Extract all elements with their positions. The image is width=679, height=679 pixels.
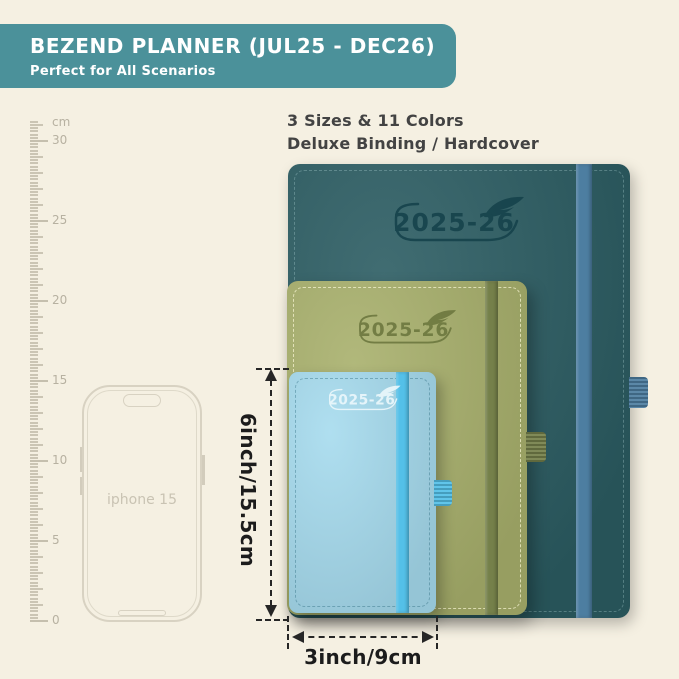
ruler-label: 0 — [52, 613, 60, 627]
ruler-tick — [30, 524, 43, 526]
ruler-tick — [30, 498, 38, 500]
ruler-tick — [30, 338, 38, 340]
ruler-tick — [30, 534, 38, 536]
elastic-band — [485, 281, 498, 615]
ruler-tick — [30, 514, 38, 516]
height-extent-bottom — [256, 619, 289, 621]
ruler-label: 20 — [52, 293, 67, 307]
ruler-tick — [30, 364, 43, 366]
ruler-tick — [30, 550, 38, 552]
ruler-tick — [30, 380, 48, 382]
product-tagline: Perfect for All Scenarios — [30, 64, 216, 79]
pen-loop — [526, 432, 546, 462]
ruler-tick — [30, 614, 38, 616]
ruler-tick — [30, 495, 38, 497]
ruler-tick — [30, 361, 38, 363]
ruler-tick — [30, 127, 38, 129]
ruler-tick — [30, 486, 38, 488]
ruler-tick — [30, 316, 43, 318]
ruler-tick — [30, 556, 43, 558]
ruler-tick — [30, 150, 38, 152]
ruler-tick — [30, 425, 38, 427]
ruler-tick — [30, 310, 38, 312]
ruler-tick — [30, 284, 43, 286]
ruler-tick — [30, 230, 38, 232]
ruler-tick — [30, 601, 38, 603]
feature-text: 3 Sizes & 11 Colors Deluxe Binding / Har… — [287, 109, 539, 155]
ruler-tick — [30, 489, 38, 491]
ruler-label: 30 — [52, 133, 67, 147]
logo-year: 2025-26 — [393, 208, 515, 237]
width-dimension-label: 3inch/9cm — [263, 645, 463, 669]
ruler-tick — [30, 319, 38, 321]
ruler-tick — [30, 617, 38, 619]
ruler-tick — [30, 479, 38, 481]
embossed-logo: 2025-26 — [388, 194, 528, 250]
ruler-tick — [30, 210, 38, 212]
ruler-tick — [30, 562, 38, 564]
ruler-label: 10 — [52, 453, 67, 467]
ruler-tick — [30, 185, 38, 187]
height-dimension-line — [270, 380, 272, 606]
ruler-tick — [30, 386, 38, 388]
pen-loop — [434, 480, 452, 506]
product-image: cm 302520151050 BEZEND PLANNER (JUL25 - … — [0, 0, 679, 679]
ruler-tick — [30, 342, 38, 344]
ruler-tick — [30, 313, 38, 315]
ruler-tick — [30, 415, 38, 417]
ruler-tick — [30, 559, 38, 561]
ruler-tick — [30, 546, 38, 548]
home-indicator — [118, 610, 166, 616]
ruler-tick — [30, 255, 38, 257]
ruler-unit-label: cm — [52, 115, 70, 129]
ruler-tick — [30, 194, 38, 196]
ruler-tick — [30, 326, 38, 328]
ruler-tick — [30, 473, 38, 475]
ruler-tick — [30, 428, 43, 430]
ruler-tick — [30, 444, 43, 446]
ruler-tick — [30, 201, 38, 203]
ruler-tick — [30, 271, 38, 273]
ruler-tick — [30, 422, 38, 424]
ruler-tick — [30, 300, 48, 302]
ruler-tick — [30, 620, 48, 622]
ruler-tick — [30, 178, 38, 180]
ruler-label: 25 — [52, 213, 67, 227]
ruler-tick — [30, 457, 38, 459]
ruler-tick — [30, 159, 38, 161]
ruler-tick — [30, 188, 43, 190]
embossed-logo: 2025-26 — [325, 384, 403, 415]
ruler-tick — [30, 575, 38, 577]
ruler-tick — [30, 537, 38, 539]
ruler-tick — [30, 124, 43, 126]
pen-loop — [629, 377, 648, 408]
ruler-tick — [30, 463, 38, 465]
ruler-tick — [30, 306, 38, 308]
ruler-tick — [30, 172, 43, 174]
ruler-tick — [30, 402, 38, 404]
ruler-tick — [30, 530, 38, 532]
ruler-tick — [30, 297, 38, 299]
dynamic-island — [123, 394, 161, 407]
ruler-tick — [30, 226, 38, 228]
ruler-tick — [30, 242, 38, 244]
ruler-tick — [30, 175, 38, 177]
ruler-tick — [30, 137, 38, 139]
ruler-tick — [30, 214, 38, 216]
ruler-tick — [30, 578, 38, 580]
ruler-tick — [30, 566, 38, 568]
ruler-tick — [30, 274, 38, 276]
height-dimension-label: 6inch/15.5cm — [236, 390, 260, 590]
header-banner: BEZEND PLANNER (JUL25 - DEC26) Perfect f… — [0, 24, 456, 88]
ruler-tick — [30, 134, 38, 136]
ruler-tick — [30, 370, 38, 372]
ruler-tick — [30, 220, 48, 222]
ruler-tick — [30, 588, 43, 590]
ruler-tick — [30, 204, 43, 206]
feature-line-sizes: 3 Sizes & 11 Colors — [287, 109, 539, 132]
ruler-tick — [30, 236, 43, 238]
ruler-tick — [30, 223, 38, 225]
ruler-tick — [30, 412, 43, 414]
iphone-outline: iphone 15 — [82, 385, 202, 622]
arrow-down-icon — [265, 605, 277, 617]
ruler-tick — [30, 431, 38, 433]
ruler-tick — [30, 345, 38, 347]
ruler-tick — [30, 351, 38, 353]
planner-small: 2025-26 — [289, 372, 436, 613]
ruler-tick — [30, 303, 38, 305]
ruler-tick — [30, 582, 38, 584]
arrow-up-icon — [265, 369, 277, 381]
ruler-tick — [30, 166, 38, 168]
ruler-tick — [30, 607, 38, 609]
ruler-tick — [30, 207, 38, 209]
ruler-tick — [30, 470, 38, 472]
ruler-tick — [30, 569, 38, 571]
ruler-tick — [30, 121, 38, 123]
iphone-label: iphone 15 — [84, 492, 200, 508]
ruler-tick — [30, 390, 38, 392]
ruler-tick — [30, 434, 38, 436]
ruler-tick — [30, 610, 38, 612]
ruler-tick — [30, 543, 38, 545]
ruler-tick — [30, 598, 38, 600]
ruler-tick — [30, 527, 38, 529]
ruler-tick — [30, 348, 43, 350]
ruler-tick — [30, 329, 38, 331]
ruler-tick — [30, 585, 38, 587]
ruler-tick — [30, 409, 38, 411]
ruler-tick — [30, 246, 38, 248]
ruler-tick — [30, 156, 43, 158]
ruler-tick — [30, 396, 43, 398]
embossed-logo: 2025-26 — [354, 308, 459, 350]
ruler-tick — [30, 278, 38, 280]
ruler-tick — [30, 252, 43, 254]
ruler-tick — [30, 265, 38, 267]
ruler-tick — [30, 358, 38, 360]
ruler-tick — [30, 438, 38, 440]
ruler-tick — [30, 217, 38, 219]
ruler-tick — [30, 447, 38, 449]
ruler-tick — [30, 354, 38, 356]
ruler-tick — [30, 418, 38, 420]
ruler-tick — [30, 441, 38, 443]
ruler-tick — [30, 191, 38, 193]
elastic-band — [576, 164, 592, 618]
ruler-tick — [30, 143, 38, 145]
ruler-tick — [30, 383, 38, 385]
ruler-tick — [30, 466, 38, 468]
ruler-tick — [30, 140, 48, 142]
ruler-tick — [30, 476, 43, 478]
ruler-tick — [30, 553, 38, 555]
ruler-tick — [30, 258, 38, 260]
ruler-tick — [30, 604, 43, 606]
ruler-tick — [30, 249, 38, 251]
arrow-right-icon — [422, 631, 434, 643]
logo-year: 2025-26 — [358, 320, 449, 341]
ruler-tick — [30, 322, 38, 324]
ruler-tick — [30, 182, 38, 184]
ruler-tick — [30, 198, 38, 200]
arrow-left-icon — [292, 631, 304, 643]
volume-button — [80, 477, 83, 495]
height-extent-top — [256, 368, 289, 370]
ruler-tick — [30, 162, 38, 164]
ruler-tick — [30, 594, 38, 596]
width-dimension-line — [298, 636, 428, 638]
ruler-tick — [30, 492, 43, 494]
ruler-tick — [30, 294, 38, 296]
ruler-tick — [30, 153, 38, 155]
ruler-tick — [30, 450, 38, 452]
ruler-tick — [30, 511, 38, 513]
ruler-tick — [30, 377, 38, 379]
volume-button — [80, 447, 83, 472]
ruler-tick — [30, 287, 38, 289]
ruler-tick — [30, 508, 43, 510]
logo-year: 2025-26 — [328, 392, 395, 408]
ruler-tick — [30, 572, 43, 574]
ruler-tick — [30, 367, 38, 369]
product-title: BEZEND PLANNER (JUL25 - DEC26) — [30, 34, 435, 58]
ruler-tick — [30, 505, 38, 507]
ruler-tick — [30, 502, 38, 504]
ruler-label: 5 — [52, 533, 60, 547]
ruler-label: 15 — [52, 373, 67, 387]
ruler-tick — [30, 268, 43, 270]
ruler-tick — [30, 393, 38, 395]
ruler-tick — [30, 332, 43, 334]
ruler-tick — [30, 239, 38, 241]
ruler-tick — [30, 335, 38, 337]
feature-line-binding: Deluxe Binding / Hardcover — [287, 132, 539, 155]
ruler-tick — [30, 374, 38, 376]
ruler-tick — [30, 591, 38, 593]
ruler-tick — [30, 281, 38, 283]
ruler-tick — [30, 406, 38, 408]
ruler-tick — [30, 146, 38, 148]
ruler-tick — [30, 454, 38, 456]
ruler-tick — [30, 233, 38, 235]
power-button — [202, 455, 205, 485]
ruler-tick — [30, 540, 48, 542]
ruler-tick — [30, 521, 38, 523]
ruler-tick — [30, 460, 48, 462]
ruler-tick — [30, 290, 38, 292]
ruler-tick — [30, 169, 38, 171]
ruler-tick — [30, 482, 38, 484]
ruler-tick — [30, 130, 38, 132]
ruler-tick — [30, 518, 38, 520]
ruler-tick — [30, 399, 38, 401]
ruler-tick — [30, 262, 38, 264]
